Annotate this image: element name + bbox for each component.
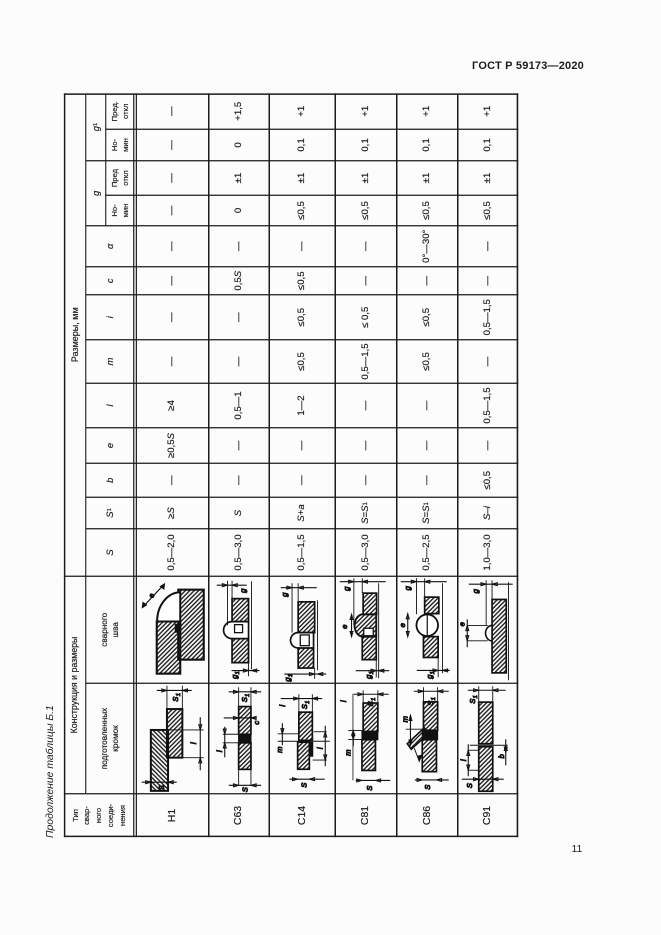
svg-text:S: S [468,699,477,704]
svg-text:1: 1 [473,695,479,698]
svg-text:e: e [146,593,155,597]
svg-text:l: l [215,750,224,752]
svg-text:S: S [240,787,249,792]
svg-text:S: S [365,701,374,706]
svg-text:S: S [240,697,249,702]
svg-text:1: 1 [175,693,181,696]
svg-text:1: 1 [430,671,436,674]
svg-text:g: g [279,591,288,596]
svg-text:m: m [343,750,352,756]
svg-text:m: m [274,747,283,753]
svg-text:S: S [426,701,435,706]
svg-text:S: S [423,785,432,790]
svg-text:S: S [364,786,373,791]
svg-text:m: m [400,716,409,722]
svg-text:1: 1 [235,671,241,674]
svg-text:l: l [459,759,468,761]
svg-text:g: g [341,585,350,590]
svg-text:S: S [170,697,179,702]
svg-text:1: 1 [368,671,374,674]
svg-text:1: 1 [431,697,437,700]
svg-text:e: e [398,623,407,627]
svg-text:b: b [497,754,506,758]
svg-text:1: 1 [370,698,376,701]
svg-text:g: g [403,585,412,590]
svg-text:l: l [188,742,197,744]
svg-text:l: l [277,705,286,707]
svg-text:i: i [338,700,347,702]
svg-text:S: S [299,783,308,788]
svg-text:S: S [156,785,165,790]
svg-text:e: e [339,624,348,628]
svg-text:S: S [299,704,308,709]
svg-text:1: 1 [245,694,251,697]
svg-text:g: g [471,588,480,593]
svg-text:c: c [252,721,261,725]
svg-text:1: 1 [287,673,293,676]
svg-text:S: S [465,783,474,788]
svg-text:1: 1 [304,701,310,704]
svg-text:i: i [315,747,324,749]
svg-text:g: g [238,587,247,592]
svg-text:e: e [457,622,466,626]
